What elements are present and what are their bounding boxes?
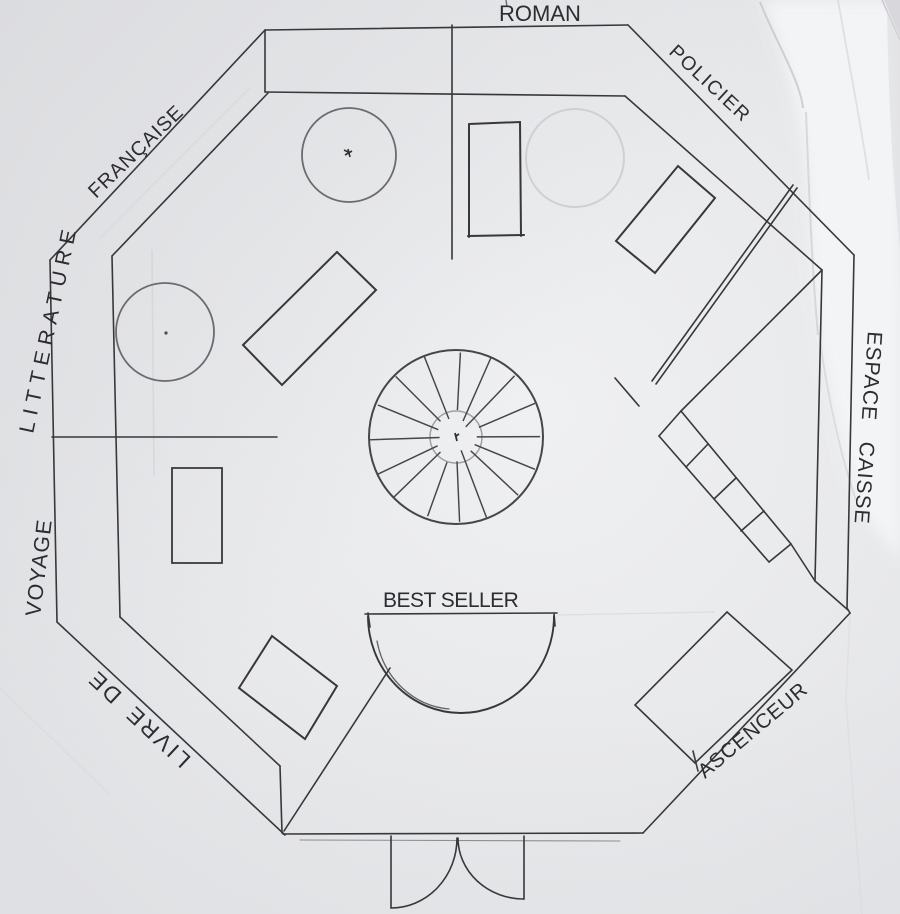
svg-text:ROMAN: ROMAN — [499, 1, 581, 26]
svg-text:BEST SELLER: BEST SELLER — [383, 589, 519, 612]
